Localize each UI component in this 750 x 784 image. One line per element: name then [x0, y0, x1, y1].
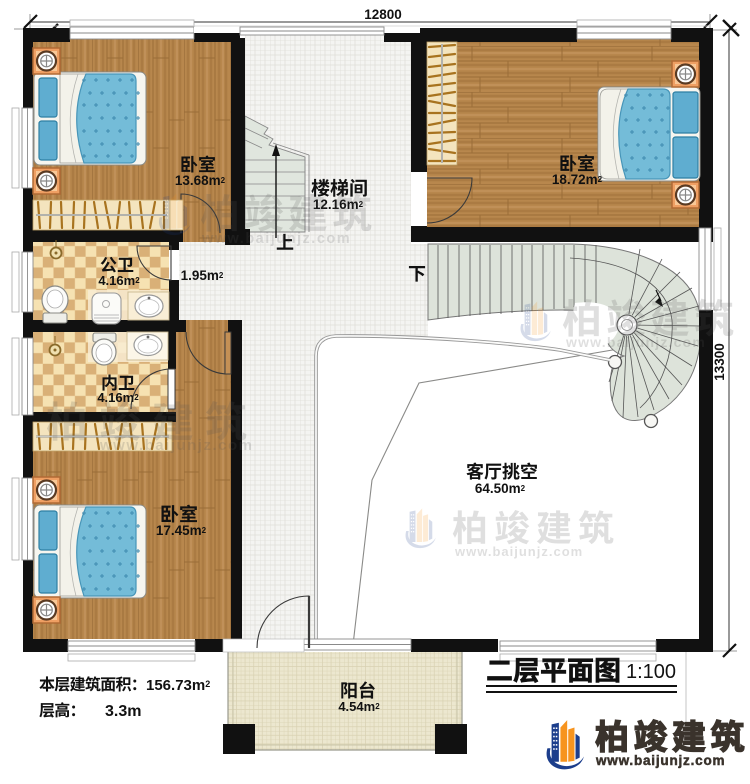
- svg-text:1.95m2: 1.95m2: [181, 268, 224, 283]
- svg-text:1:100: 1:100: [626, 661, 676, 683]
- svg-text:12800: 12800: [364, 7, 402, 22]
- svg-text:18.72m2: 18.72m2: [552, 172, 603, 187]
- svg-text:156.73m2: 156.73m2: [146, 677, 210, 694]
- svg-text:64.50m2: 64.50m2: [475, 481, 526, 496]
- svg-text:www.baijunjz.com: www.baijunjz.com: [565, 334, 706, 350]
- svg-text:17.45m2: 17.45m2: [156, 523, 207, 538]
- svg-text:4.16m2: 4.16m2: [97, 390, 139, 405]
- svg-text:www.baijunjz.com: www.baijunjz.com: [454, 544, 583, 559]
- svg-text:www.baijunjz.com: www.baijunjz.com: [99, 437, 253, 454]
- svg-text:13300: 13300: [712, 343, 727, 381]
- svg-text:www.baijunjz.com: www.baijunjz.com: [595, 753, 725, 768]
- svg-text:3.3m: 3.3m: [105, 703, 141, 720]
- svg-text:4.16m2: 4.16m2: [98, 273, 140, 288]
- svg-text:4.54m2: 4.54m2: [338, 699, 380, 714]
- svg-text:www.baijunjz.com: www.baijunjz.com: [201, 231, 351, 247]
- svg-text:13.68m2: 13.68m2: [175, 173, 226, 188]
